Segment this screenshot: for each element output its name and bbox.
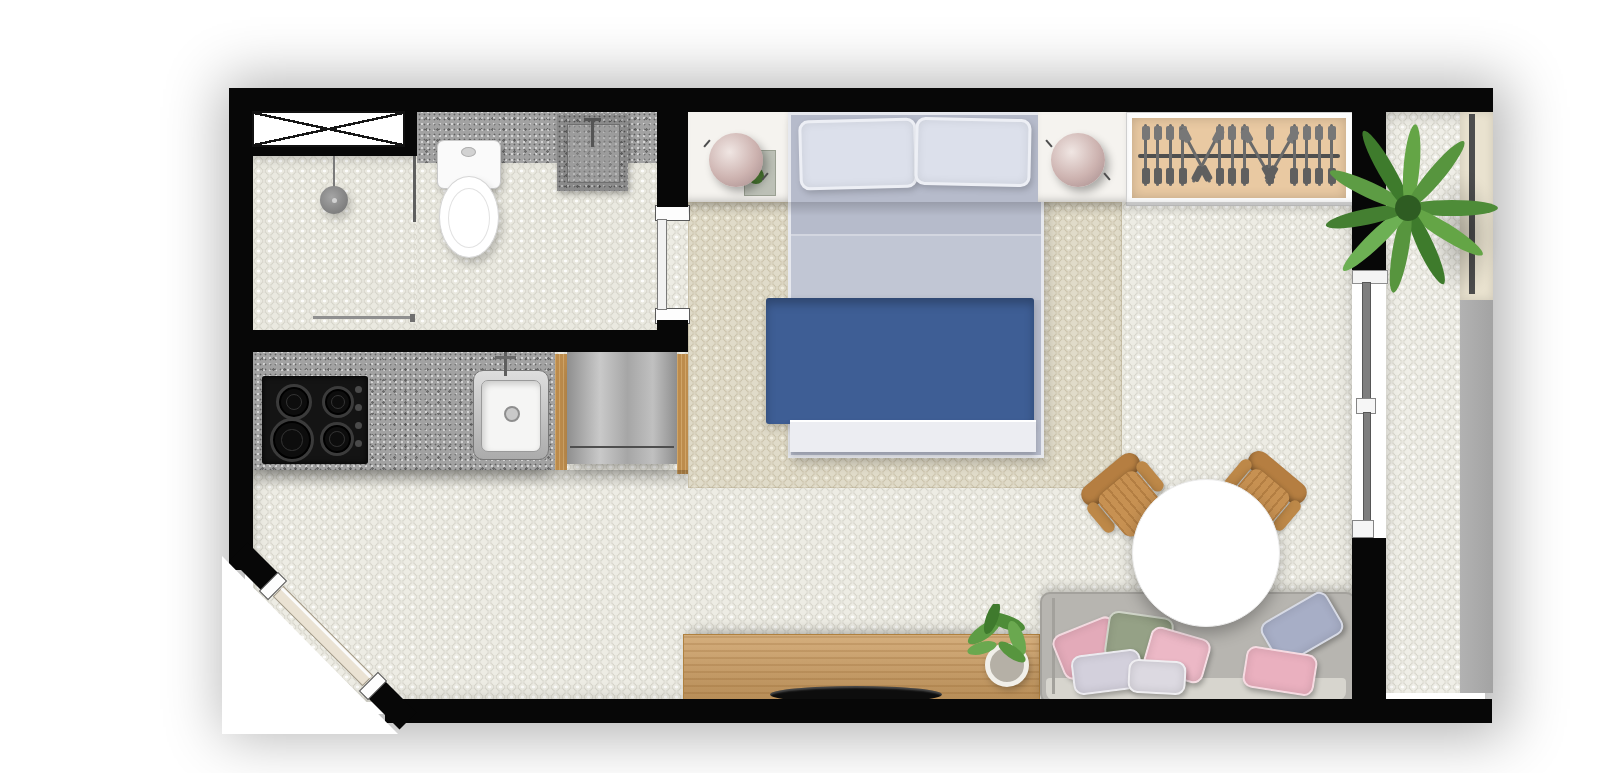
shower-head-center: [332, 198, 337, 203]
wall-bathroom-right-upper: [657, 112, 688, 207]
palm-plant: [1318, 118, 1503, 303]
clothes-hanger: [1144, 124, 1147, 186]
wood-trim-right: [677, 354, 688, 474]
ventilation-shaft: [252, 111, 405, 147]
bed-blanket: [766, 298, 1034, 424]
wall-bathroom-divider: [229, 330, 688, 352]
balcony-door-handle-end: [1352, 520, 1374, 538]
sink-drain: [504, 406, 520, 422]
cooktop: [262, 376, 368, 464]
table-lamp-right: [1051, 133, 1105, 187]
refrigerator-door-seam: [570, 446, 674, 448]
bed-pillow-left: [798, 117, 918, 190]
clothes-hanger: [1169, 124, 1172, 186]
burner-top-right: [322, 386, 354, 418]
wood-trim-left: [555, 354, 567, 470]
bed-blanket-fold: [790, 420, 1036, 452]
clothes-hanger: [1305, 124, 1308, 186]
shower-hose: [333, 156, 335, 190]
bathroom-door-leaf: [657, 219, 667, 310]
bathroom-sliding-door-stop: [410, 314, 415, 322]
bed-pillow-right: [914, 117, 1031, 187]
toilet-flush-button: [461, 147, 476, 157]
clothes-hanger: [1231, 124, 1234, 186]
wardrobe-interior: [1132, 118, 1346, 198]
bathroom-sliding-door: [313, 316, 413, 319]
dining-table: [1132, 479, 1280, 627]
toilet-seat-rim: [448, 188, 490, 248]
floor-plan-canvas: [0, 0, 1600, 773]
clothes-hanger: [1218, 124, 1221, 186]
washbasin-faucet-handle: [584, 118, 601, 121]
wall-bathroom-right-lower: [657, 320, 688, 352]
balcony-door-panel-lower: [1363, 412, 1371, 524]
console-plant-leaves: [962, 604, 1040, 666]
burner-bottom-left: [270, 418, 314, 462]
cooktop-knob-1: [355, 386, 362, 393]
wall-balcony-lower: [1352, 538, 1386, 702]
wall-bottom: [385, 699, 1492, 723]
sink-faucet-handle: [495, 356, 516, 359]
cooktop-knob-4: [355, 440, 362, 447]
clothes-hanger: [1156, 124, 1159, 186]
sofa-pillow: [1127, 659, 1187, 696]
cooktop-knob-2: [355, 404, 362, 411]
wall-top: [229, 88, 1493, 112]
entry-exterior: [222, 556, 398, 734]
entry-door-assembly: [215, 540, 440, 740]
entry-wall-stub-upper: [239, 551, 270, 582]
cooktop-knob-3: [355, 422, 362, 429]
shower-glass-partition: [413, 156, 416, 222]
clothes-hanger: [1293, 124, 1296, 186]
burner-bottom-right: [320, 422, 354, 456]
burner-top-left: [276, 384, 312, 420]
entry-wall-stub-lower: [376, 689, 408, 721]
balcony-outer-parapet: [1460, 300, 1493, 693]
wall-left: [229, 88, 253, 570]
washbasin-faucet-spout: [591, 120, 594, 147]
bed-sheet-lower: [791, 236, 1041, 300]
table-lamp-left: [709, 133, 763, 187]
